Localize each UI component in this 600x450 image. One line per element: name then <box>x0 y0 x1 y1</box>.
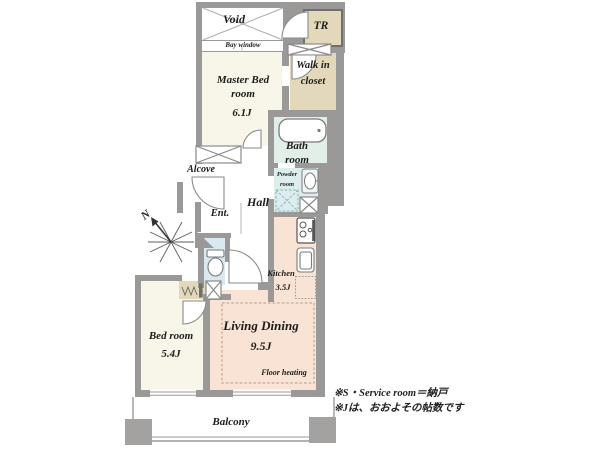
hall-label: Hall <box>247 195 269 211</box>
wall <box>196 2 202 164</box>
room-toilet <box>204 238 225 285</box>
kitchen-size: 3.5J <box>276 282 291 293</box>
wall <box>203 297 210 397</box>
living-dining-label: Living Dining <box>223 318 299 335</box>
walk-in-closet-label: Walk in closet <box>293 58 333 91</box>
hatch-box-master-closet <box>196 146 241 163</box>
kitchen-label: Kitchen <box>267 268 294 279</box>
wall <box>268 212 318 217</box>
wall <box>196 2 292 8</box>
floor-heating-label: Floor heating <box>261 368 307 378</box>
wall <box>135 275 182 281</box>
bedroom-label: Bed room <box>149 329 193 343</box>
wall <box>195 202 201 232</box>
note-jo-size: ※Jは、おおよその帖数です <box>334 400 464 415</box>
alcove-label: Alcove <box>187 163 215 176</box>
powder-room-label: Powder room <box>271 170 303 190</box>
wall <box>198 233 204 288</box>
entrance-label: Ent. <box>211 207 229 221</box>
void-label: Void <box>223 12 245 28</box>
wall <box>268 163 278 168</box>
balcony-column-left <box>125 419 152 445</box>
compass-north-label: N <box>138 208 153 224</box>
floor-plan: N Void TR Bay window Master Bed room 6.1… <box>0 0 600 450</box>
wall <box>135 275 141 397</box>
master-bedroom-size: 6.1J <box>232 106 251 120</box>
wall <box>282 44 289 66</box>
balcony-label: Balcony <box>212 415 249 429</box>
master-bedroom-label: Master Bed room <box>215 73 271 102</box>
wall <box>336 53 344 114</box>
bath-room-label: Bath room <box>279 139 315 168</box>
wall <box>316 200 325 397</box>
wall <box>327 110 344 206</box>
balcony-column-right <box>309 417 336 443</box>
bay-window-label: Bay window <box>225 41 260 50</box>
wall <box>135 390 325 397</box>
compass: N <box>138 208 194 262</box>
note-service-room: ※S・Service room＝納戸 <box>334 385 448 400</box>
living-dining-size: 9.5J <box>251 339 272 355</box>
wall <box>225 238 230 262</box>
wall <box>258 282 274 290</box>
tr-label: TR <box>314 19 329 34</box>
living-door <box>229 250 262 283</box>
wall <box>177 182 183 213</box>
wall <box>268 110 337 117</box>
bedroom-size: 5.4J <box>161 347 180 361</box>
